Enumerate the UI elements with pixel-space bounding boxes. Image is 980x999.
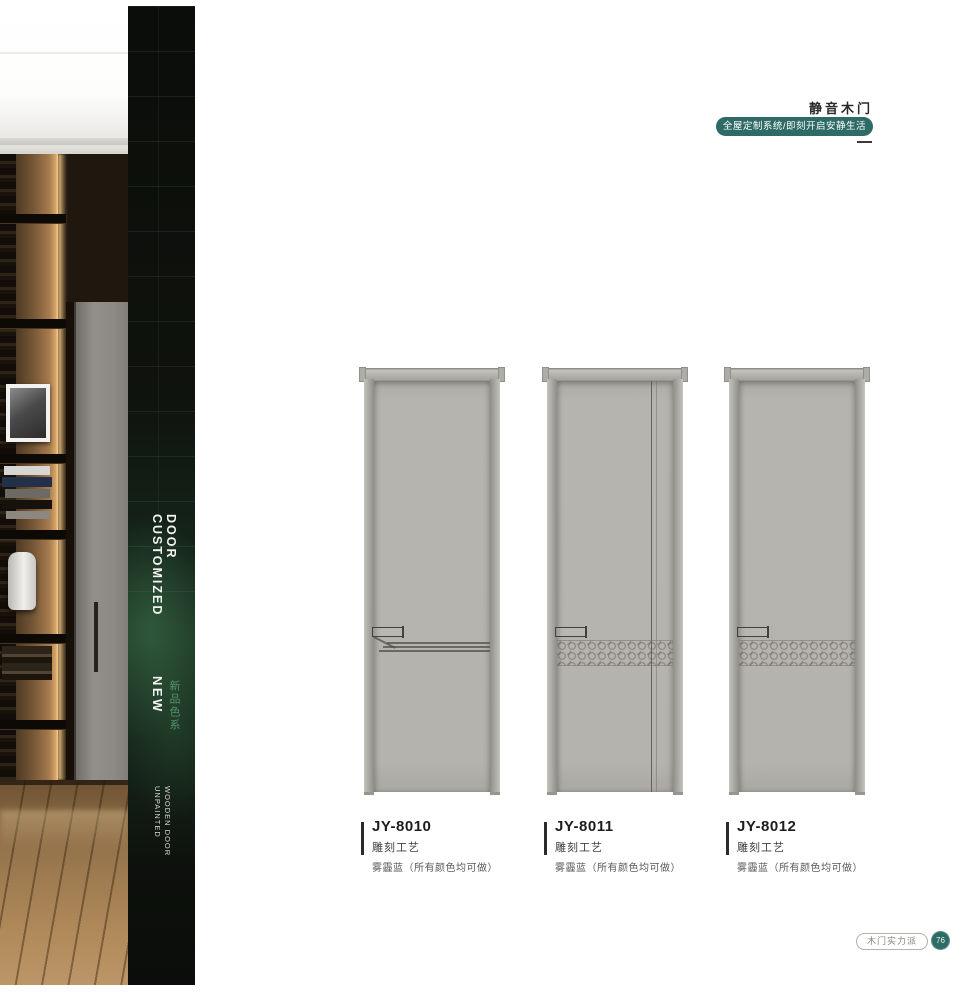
product-craft: 雕刻工艺 xyxy=(737,839,896,855)
sidebar-new-series: 新品色系 xyxy=(166,680,182,732)
shelf-board xyxy=(0,720,66,729)
ceiling-molding xyxy=(0,52,128,54)
vase xyxy=(8,552,36,610)
door-frame-right xyxy=(855,379,865,795)
book-stack xyxy=(2,466,54,520)
label-accent-bar xyxy=(544,822,547,855)
label-accent-bar xyxy=(726,822,729,855)
groove-line xyxy=(379,650,490,652)
door-frame-left xyxy=(364,379,374,795)
book xyxy=(6,511,50,519)
ceiling-molding xyxy=(0,138,128,145)
product-finish: 雾霾蓝（所有颜色均可做） xyxy=(555,859,714,874)
sidebar-title-line1: CUSTOMIZED xyxy=(150,514,164,616)
book xyxy=(2,477,52,487)
door-lintel xyxy=(359,368,505,381)
bookshelf xyxy=(0,154,128,780)
product-label: JY-8012 雕刻工艺 雾霾蓝（所有颜色均可做） xyxy=(726,818,896,874)
door-image-jy-8010 xyxy=(361,368,503,795)
door-image-jy-8011 xyxy=(544,368,686,795)
sidebar-title-line2: DOOR xyxy=(164,514,178,616)
framed-picture-image xyxy=(10,388,46,438)
vertical-groove xyxy=(651,381,657,792)
page-number-dot-icon: 76 xyxy=(931,931,950,950)
door-image-jy-8012 xyxy=(726,368,868,795)
book-stack xyxy=(2,646,52,680)
photo-ceiling xyxy=(0,6,128,154)
door-handle xyxy=(372,627,403,637)
scene-gray-door xyxy=(74,302,128,780)
sidebar-new-label: NEW xyxy=(150,676,165,714)
label-accent-bar xyxy=(361,822,364,855)
carved-lattice-band xyxy=(557,640,673,666)
sidebar-title-customized-door: CUSTOMIZED DOOR xyxy=(150,514,178,616)
groove-line xyxy=(387,642,490,644)
product-model: JY-8010 xyxy=(372,818,531,835)
product-label: JY-8010 雕刻工艺 雾霾蓝（所有颜色均可做） xyxy=(361,818,531,874)
product-model: JY-8011 xyxy=(555,818,714,835)
door-lintel xyxy=(724,368,870,381)
door-handle xyxy=(555,627,586,637)
door-frame-left xyxy=(547,379,557,795)
door-slab xyxy=(739,381,855,792)
product-model: JY-8012 xyxy=(737,818,896,835)
catalog-page: CUSTOMIZED DOOR NEW 新品色系 UNPAINTED WOODE… xyxy=(0,0,980,999)
tagline-badge: 全屋定制系统/即刻开启安静生活 xyxy=(716,117,873,136)
page-title: 静音木门 xyxy=(809,98,873,117)
door-frame-right xyxy=(673,379,683,795)
wood-floor xyxy=(0,780,128,985)
sidebar-subtitle-unpainted: UNPAINTED WOODEN DOOR xyxy=(152,786,172,856)
door-handle xyxy=(737,627,768,637)
door-frame-right xyxy=(490,379,500,795)
framed-picture xyxy=(6,384,50,442)
interior-photo xyxy=(0,6,128,985)
book xyxy=(3,500,52,509)
door-slab xyxy=(374,381,490,792)
shelf-board xyxy=(0,530,66,539)
groove-line xyxy=(383,646,490,648)
tagline-underline xyxy=(857,141,872,143)
footer-slogan-badge: 木门实力派 xyxy=(856,933,928,950)
product-craft: 雕刻工艺 xyxy=(555,839,714,855)
product-label: JY-8011 雕刻工艺 雾霾蓝（所有颜色均可做） xyxy=(544,818,714,874)
product-finish: 雾霾蓝（所有颜色均可做） xyxy=(737,859,896,874)
sidebar-subtitle-line2: WOODEN DOOR xyxy=(162,786,172,856)
scene-door-handle xyxy=(94,602,98,672)
carved-lattice-band xyxy=(739,640,855,666)
shelf-board xyxy=(0,319,66,328)
product-finish: 雾霾蓝（所有颜色均可做） xyxy=(372,859,531,874)
book xyxy=(4,466,50,475)
door-lintel xyxy=(542,368,688,381)
door-frame-left xyxy=(729,379,739,795)
product-craft: 雕刻工艺 xyxy=(372,839,531,855)
sidebar-subtitle-line1: UNPAINTED xyxy=(152,786,162,856)
floor-sheen xyxy=(0,810,128,850)
shelf-board xyxy=(0,214,66,223)
book xyxy=(5,489,50,498)
shelf-board xyxy=(0,634,66,643)
shelf-board xyxy=(0,454,66,463)
door-jamb xyxy=(66,302,74,780)
